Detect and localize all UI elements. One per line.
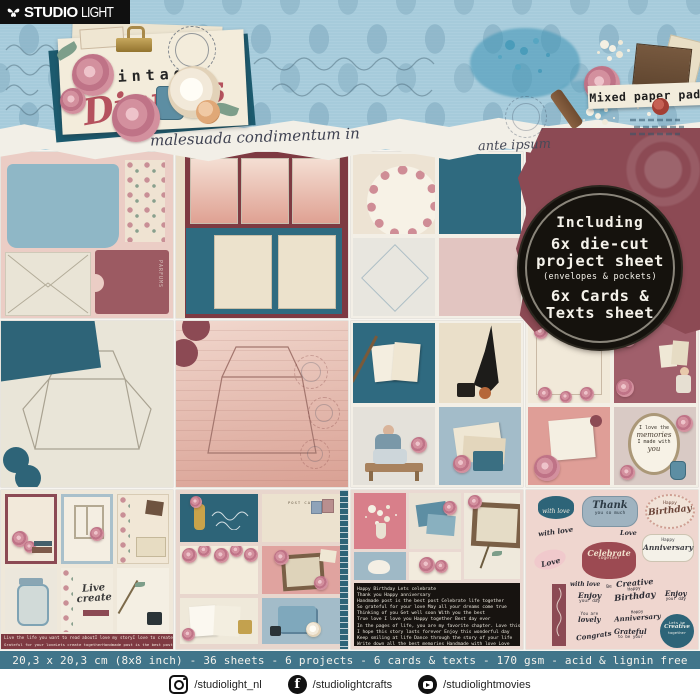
envelopes-square — [439, 407, 521, 485]
card-teapot — [354, 552, 406, 580]
mixed-paper-pad-text: Mixed paper pad — [589, 87, 700, 105]
card-mason-jar — [5, 568, 57, 632]
youtube-text: /studiolightmovies — [443, 679, 530, 691]
pink-floral-square — [439, 238, 521, 316]
happy-anniversary-script: Happy Anniversary — [614, 608, 661, 623]
including-badge: Including 6x die-cut project sheet (enve… — [519, 187, 681, 349]
you-are-lovely: You are lovely — [578, 612, 601, 624]
with-love-text: with love — [542, 508, 570, 515]
label-thank-you: Thank you so much — [582, 496, 638, 527]
be-text: Be — [606, 585, 612, 590]
memories-mirror-square: I love the memories I made with you — [614, 407, 696, 485]
badge-cards: 6x Cards & — [551, 288, 649, 305]
strip-phrase-5: Lets create together — [56, 642, 103, 649]
journal-scene-square — [353, 323, 435, 403]
vertical-text-strip — [340, 490, 348, 649]
pocket-mauve: PARFUMS — [95, 250, 169, 314]
enjoy-your-day: Enjoy your day — [578, 592, 601, 605]
memories-line2: memories — [631, 431, 677, 439]
sentiment-strip: Live the life you want to read about I l… — [1, 634, 173, 649]
badge-project-sheet: project sheet — [536, 253, 664, 270]
card-flowers-books — [5, 494, 57, 564]
tile-journal-cards-a: Live create Live the life you want to re… — [1, 490, 173, 649]
postmark-stamp — [505, 96, 547, 138]
tile-wreath-squares-sheet — [351, 152, 523, 318]
card-rose-garland — [180, 546, 258, 594]
script-card — [214, 235, 272, 309]
youtube-handle: /studiolightmovies — [418, 675, 530, 694]
instagram-icon — [169, 675, 188, 694]
spec-bar: 20,3 x 20,3 cm (8x8 inch) - 36 sheets - … — [0, 651, 700, 669]
live-create-line2: create — [76, 592, 112, 605]
brand-logo: STUDIOLIGHT — [0, 0, 130, 24]
birthday-text: Birthday — [614, 590, 656, 603]
spec-text: 20,3 x 20,3 cm (8x8 inch) - 36 sheets - … — [12, 654, 687, 667]
label-lets-be-creative: Lets be Creative together — [660, 614, 694, 648]
thank-text: Thank — [583, 501, 637, 512]
paint-splatter-dots — [505, 40, 515, 50]
label-happy-anniversary: Happy Anniversary — [642, 534, 694, 562]
logo-text-light: LIGHT — [81, 4, 113, 21]
sheet-edge — [176, 152, 185, 318]
word-line: Write down all the best memories Handmad… — [357, 642, 517, 648]
postmark-stamp — [308, 397, 340, 429]
card-window-branch — [464, 493, 520, 579]
facebook-handle: /studiolightcrafts — [288, 675, 392, 694]
parfums-text: PARFUMS — [157, 260, 163, 288]
tile-frames-layout-sheet — [176, 152, 348, 318]
blue-vase — [670, 461, 686, 480]
word-line: In the pages of life, you are my favorit… — [357, 624, 517, 630]
card-blossoms — [354, 493, 406, 549]
congrats-script: Congrats — [576, 630, 612, 642]
your-day-text: your day — [578, 600, 601, 605]
card-statue-script — [180, 494, 258, 542]
rose-flower — [112, 94, 160, 142]
with-love-script: with love — [570, 582, 600, 588]
anniversary-text: Anniversary — [614, 613, 661, 624]
youtube-icon — [418, 675, 437, 694]
wax-seal — [196, 100, 220, 124]
card-postcard: POST CARD — [262, 494, 340, 542]
card-blue-envelopes — [409, 493, 461, 549]
word-line: I hope this story lasts forever Enjoy th… — [357, 630, 517, 636]
teal-square — [439, 154, 521, 234]
tile-sentiment-labels: with love Thank you so much Happy Birthd… — [526, 490, 698, 649]
photo-frame — [241, 158, 289, 224]
pocket-blue-floral — [7, 164, 119, 248]
floral-strip — [125, 160, 165, 242]
your-day-text: your day — [665, 597, 687, 601]
facebook-icon — [288, 675, 307, 694]
rose-flower — [60, 88, 86, 114]
tile-cards-wordblock: Happy Birthday Lets celebrate Thank you … — [351, 490, 523, 649]
label-love-pink: Love — [532, 546, 568, 572]
teal-panel — [186, 228, 342, 314]
card-window-floral — [61, 494, 113, 564]
card-notebook-paints — [180, 598, 258, 644]
card-live-create: Live create — [61, 568, 113, 632]
butterfly-icon — [6, 5, 21, 20]
poster: malesuada condimentum in ante ipsum STUD… — [0, 0, 700, 700]
card-inkwell-branch — [117, 568, 169, 632]
badge-diecut: 6x die-cut — [551, 236, 649, 253]
postmark-stamp — [300, 439, 330, 469]
memories-line4: you — [631, 445, 677, 453]
tile-vintage-scenes-a — [351, 321, 523, 487]
photo-frame — [190, 158, 238, 224]
tile-envelope-template-pink — [176, 321, 348, 487]
mixed-paper-pad-label: Mixed paper pad — [588, 82, 700, 109]
teal-dot — [15, 465, 41, 487]
together-text: together — [582, 557, 636, 562]
label-happy-birthday: Happy Birthday — [645, 494, 695, 529]
badge-including: Including — [556, 215, 644, 231]
grateful-script: Grateful to be your — [614, 628, 647, 640]
facebook-text: /studiolightcrafts — [313, 679, 392, 691]
badge-envelopes-pockets: (envelopes & pockets) — [543, 272, 657, 282]
card-roses — [409, 552, 461, 580]
paper-clip — [116, 26, 152, 54]
with-love-script: with love — [538, 526, 574, 538]
card-blue-journal — [262, 598, 340, 644]
postmark-stamp — [294, 355, 328, 389]
label-with-love-teal: with love — [538, 496, 574, 519]
card-wooden-frame — [262, 546, 340, 594]
rose-wreath-square — [353, 154, 435, 234]
lovely-text: lovely — [578, 616, 601, 623]
instagram-text: /studiolight_nl — [194, 679, 261, 691]
tile-diecut-pockets-sheet: PARFUMS — [1, 152, 173, 318]
love-text: Love — [540, 556, 561, 569]
logo-text-studio: STUDIO — [24, 4, 78, 21]
handmade-vertical-strip — [552, 584, 566, 646]
handwriting-decoration — [252, 52, 552, 112]
script-card — [278, 235, 336, 309]
social-footer: /studiolight_nl /studiolightcrafts /stud… — [0, 669, 700, 700]
you-so-much-text: you so much — [583, 512, 637, 517]
sentiment-word-block: Happy Birthday Lets celebrate Thank you … — [354, 583, 520, 646]
reading-lady-square — [353, 407, 435, 485]
instagram-handle: /studiolight_nl — [169, 675, 261, 694]
quill-scene-square — [439, 323, 521, 403]
anniversary-text: Anniversary — [643, 544, 693, 552]
card-envelope-floral — [117, 494, 169, 564]
to-be-your-text: to be your — [614, 635, 647, 639]
together-text: together — [660, 631, 694, 635]
word-line: Keep smiling at life Dance through the s… — [357, 636, 517, 642]
letter-roses-square — [528, 407, 610, 485]
happy-birthday-script: Happy Birthday — [613, 586, 656, 604]
lace-envelope — [5, 252, 91, 316]
strip-phrase-6: Handmade post is the best post — [102, 642, 172, 649]
blossom-flowers — [586, 108, 594, 116]
enjoy-your-day: Enjoy your day — [665, 590, 687, 602]
badge-texts-sheet: Texts sheet — [546, 305, 654, 322]
handwriting-latin-right: ante ipsum — [478, 137, 552, 155]
photo-frame — [292, 158, 340, 224]
blossom-flowers — [600, 40, 609, 49]
tile-envelope-template-cream — [1, 321, 173, 487]
postal-lines — [628, 116, 688, 140]
tile-journal-cards-b: POST CARD — [176, 490, 348, 649]
strip-phrase-4: Grateful for your love — [4, 642, 56, 649]
red-wax-seal — [652, 98, 669, 115]
love-script: Love — [620, 530, 637, 537]
lace-diamond-square — [353, 238, 435, 316]
